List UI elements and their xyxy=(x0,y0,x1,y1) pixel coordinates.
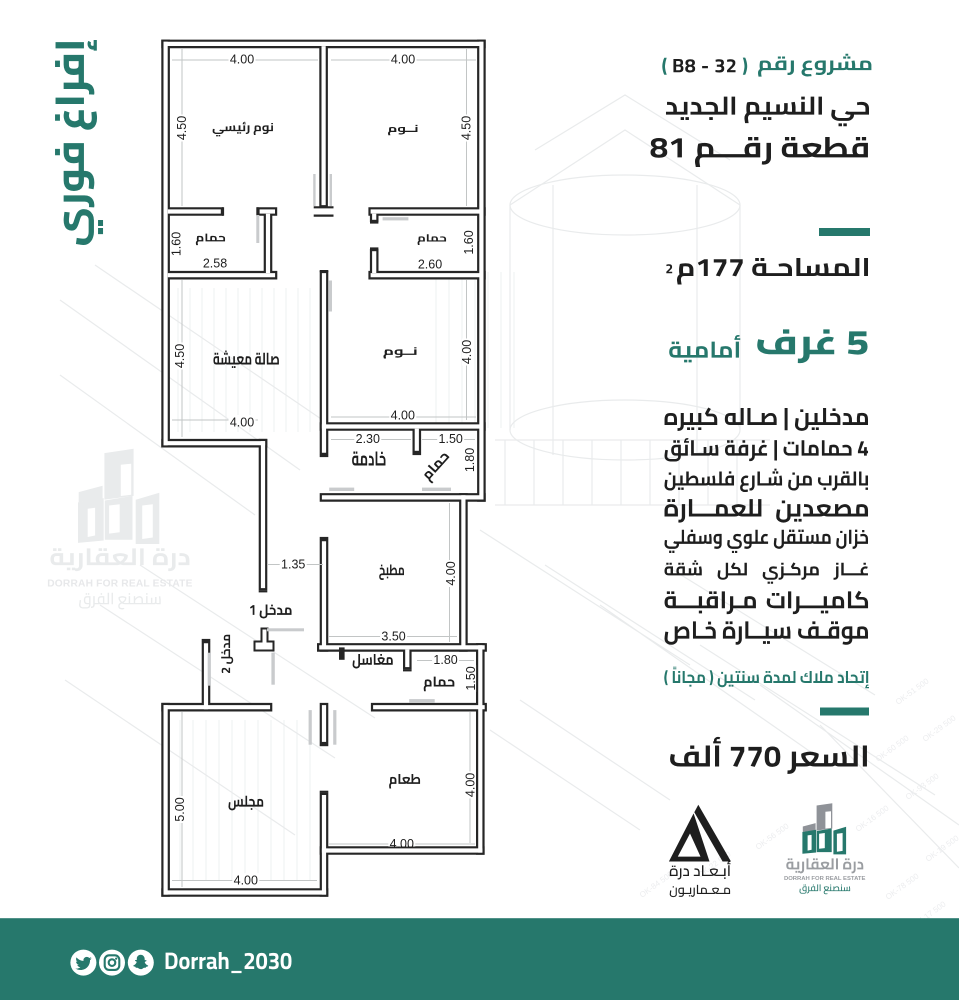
svg-text:4.00: 4.00 xyxy=(230,415,254,429)
svg-text:DORRAH FOR REAL ESTATE: DORRAH FOR REAL ESTATE xyxy=(47,579,192,590)
svg-text:DORRAH FOR REAL ESTATE: DORRAH FOR REAL ESTATE xyxy=(784,876,866,882)
svg-text:4.00: 4.00 xyxy=(444,561,458,585)
svg-text:4.00: 4.00 xyxy=(391,409,415,423)
svg-text:2.60: 2.60 xyxy=(418,258,442,272)
svg-text:4.00: 4.00 xyxy=(460,340,474,364)
svg-text:1.60: 1.60 xyxy=(462,230,476,254)
svg-text:4.00: 4.00 xyxy=(390,837,414,851)
svg-text:4.50: 4.50 xyxy=(175,116,189,140)
svg-text:1.80: 1.80 xyxy=(463,448,477,472)
svg-text:1.50: 1.50 xyxy=(464,666,478,690)
svg-text:1.35: 1.35 xyxy=(281,558,305,572)
svg-text:1.80: 1.80 xyxy=(433,653,457,667)
svg-text:4.50: 4.50 xyxy=(173,344,187,368)
svg-text:2.30: 2.30 xyxy=(356,432,380,446)
svg-text:4.00: 4.00 xyxy=(230,53,254,67)
svg-text:1.60: 1.60 xyxy=(170,232,184,256)
svg-text:2.58: 2.58 xyxy=(203,257,227,271)
svg-text:3.50: 3.50 xyxy=(381,629,405,643)
svg-text:1.50: 1.50 xyxy=(439,432,463,446)
svg-text:4.00: 4.00 xyxy=(234,874,258,888)
svg-text:4.00: 4.00 xyxy=(391,53,415,67)
svg-text:5.00: 5.00 xyxy=(173,797,187,821)
svg-text:4.00: 4.00 xyxy=(463,773,477,797)
svg-text:4.50: 4.50 xyxy=(460,116,474,140)
